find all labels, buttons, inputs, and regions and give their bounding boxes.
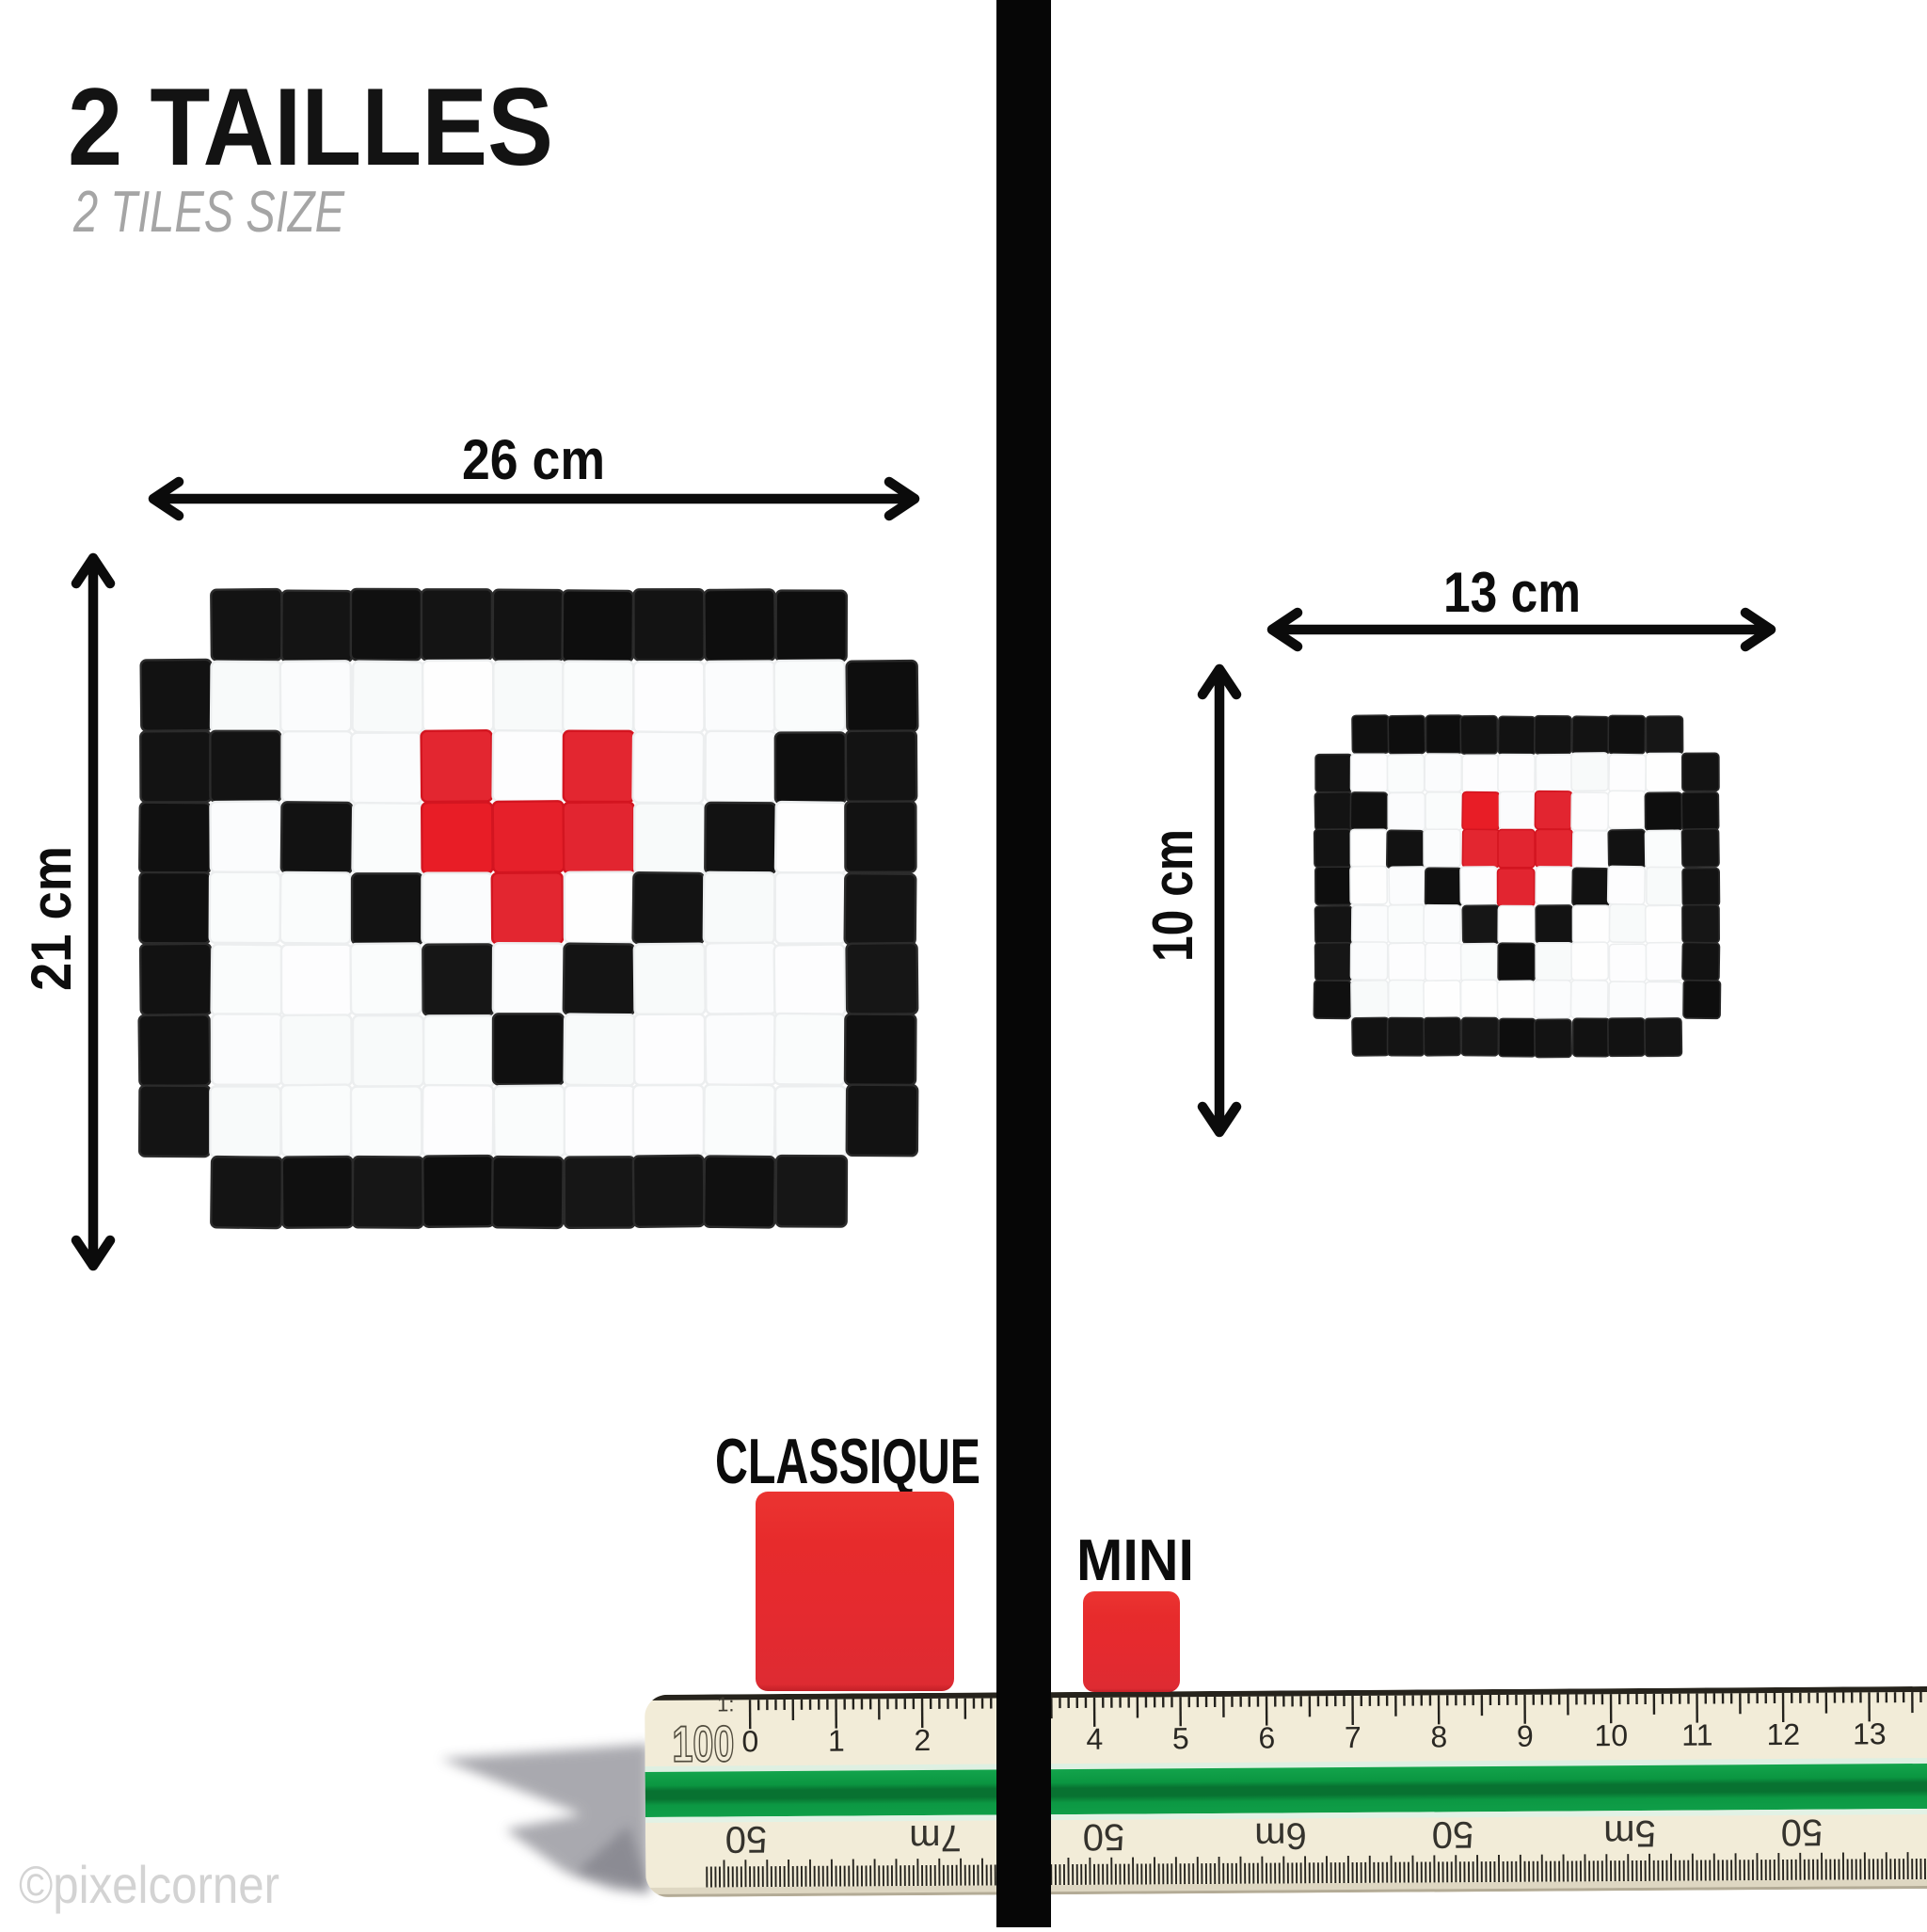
- svg-text:13 cm: 13 cm: [1443, 561, 1581, 624]
- svg-text:21 cm: 21 cm: [20, 846, 83, 991]
- svg-text:12: 12: [1766, 1717, 1800, 1751]
- svg-text:7m: 7m: [909, 1817, 962, 1859]
- svg-text:2 TILES SIZE: 2 TILES SIZE: [72, 180, 344, 245]
- svg-text:7: 7: [1345, 1720, 1362, 1754]
- svg-text:50: 50: [1781, 1812, 1823, 1853]
- svg-text:MINI: MINI: [1076, 1528, 1194, 1593]
- svg-text:2 TAILLES: 2 TAILLES: [68, 65, 553, 188]
- svg-text:11: 11: [1681, 1717, 1712, 1751]
- svg-text:0: 0: [741, 1724, 758, 1758]
- svg-text:5: 5: [1172, 1721, 1189, 1755]
- svg-text:8: 8: [1430, 1719, 1447, 1753]
- svg-text:2: 2: [914, 1723, 931, 1757]
- svg-text:6: 6: [1258, 1721, 1275, 1755]
- svg-text:9: 9: [1517, 1719, 1534, 1753]
- svg-text:13: 13: [1853, 1716, 1887, 1750]
- svg-text:1:: 1:: [717, 1692, 735, 1716]
- svg-text:6m: 6m: [1254, 1814, 1307, 1856]
- svg-text:©pixelcorner: ©pixelcorner: [19, 1855, 279, 1914]
- svg-text:50: 50: [1432, 1813, 1474, 1855]
- svg-text:100: 100: [672, 1716, 734, 1772]
- svg-text:50: 50: [725, 1818, 768, 1860]
- svg-text:10 cm: 10 cm: [1141, 829, 1204, 962]
- svg-text:1: 1: [828, 1724, 845, 1758]
- svg-text:50: 50: [1083, 1816, 1125, 1858]
- svg-text:4: 4: [1086, 1722, 1103, 1756]
- svg-text:CLASSIQUE: CLASSIQUE: [715, 1426, 980, 1497]
- svg-text:26 cm: 26 cm: [462, 428, 605, 491]
- svg-text:10: 10: [1594, 1718, 1628, 1752]
- svg-text:5m: 5m: [1603, 1812, 1656, 1854]
